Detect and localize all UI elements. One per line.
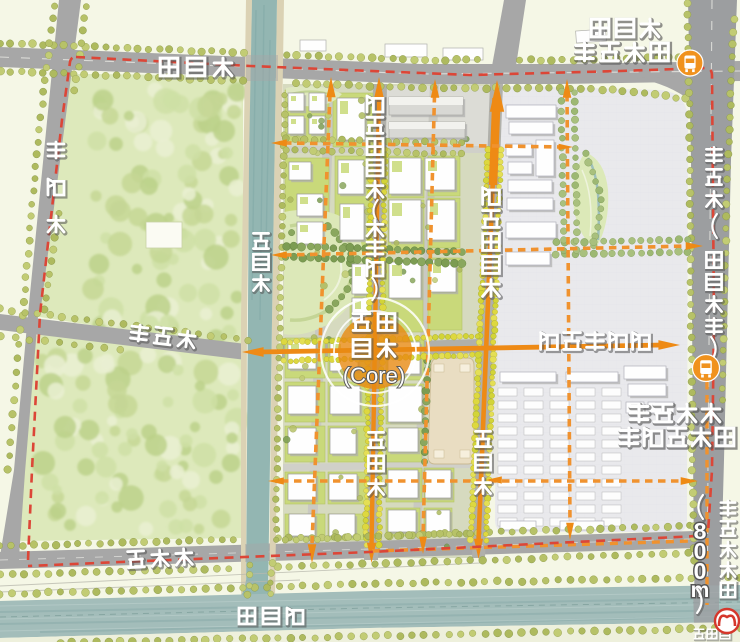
svg-text:(Core): (Core) <box>343 363 405 388</box>
